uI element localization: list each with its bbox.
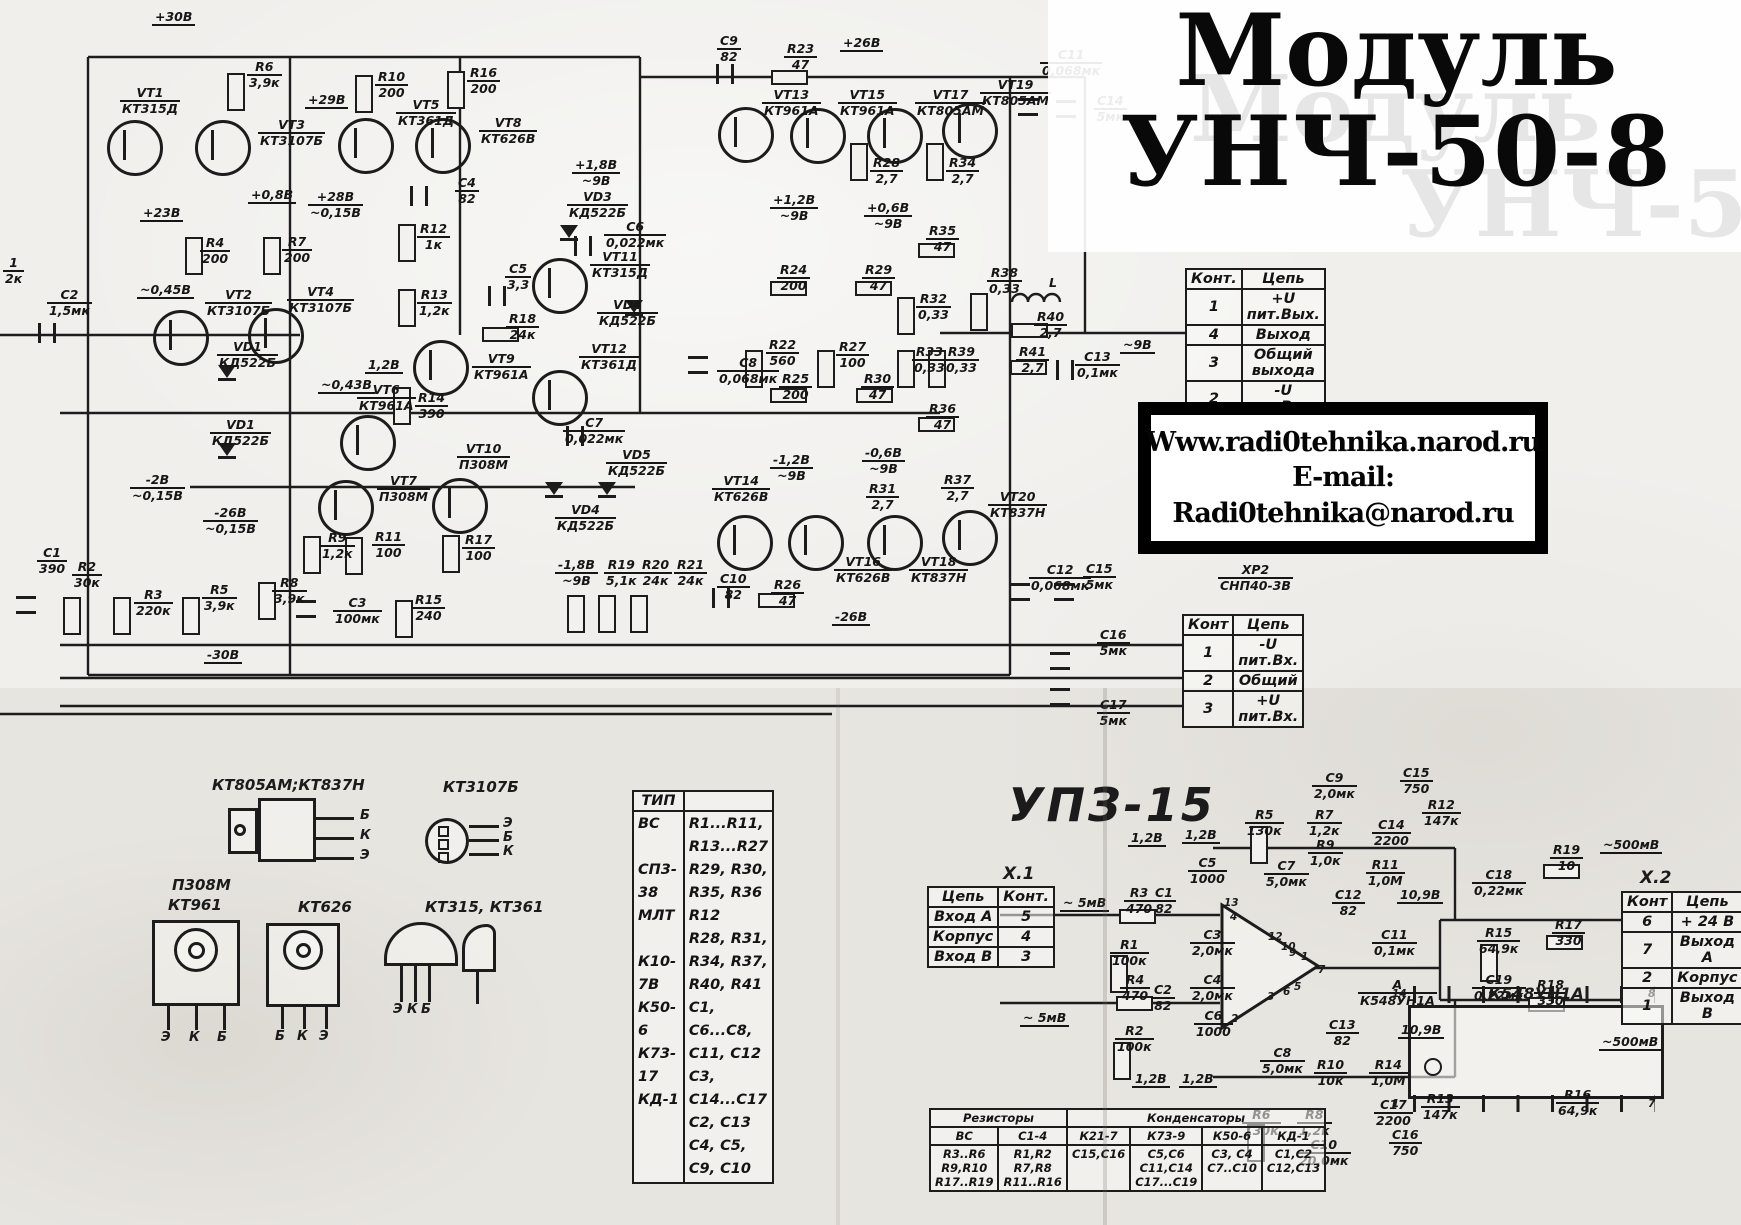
component-label: VT11КТ315Д xyxy=(590,250,650,280)
component-label: R3647 xyxy=(926,402,959,432)
output-connector-table-cell: Общий выхода xyxy=(1242,345,1325,381)
component-label: C1082 xyxy=(717,572,750,602)
kt3107-pin-label: К xyxy=(503,844,514,859)
website-banner-inner: Www.radi0tehnika.narod.ru E-mail: Radi0t… xyxy=(1151,415,1535,541)
component-label: VD3КД522Б xyxy=(567,190,628,220)
xp2-connector-table-cell: -U пит.Вх. xyxy=(1233,635,1303,671)
pinout-caption-kt3107: КТ3107Б xyxy=(443,778,519,796)
x2-connector-table-header: Конт xyxy=(1622,892,1672,912)
component-label: R342,7 xyxy=(946,156,979,186)
capacitor-symbol xyxy=(410,186,428,206)
kt315-pin-label: Э xyxy=(393,1002,403,1017)
component-label: VT9КТ961А xyxy=(472,352,531,382)
component-label: C155мк xyxy=(1083,562,1116,592)
resistor-symbol xyxy=(63,597,81,635)
kt361-pin-lead-line xyxy=(476,972,479,1004)
opamp-pin-number: 7 xyxy=(1318,964,1325,976)
component-label: R14390 xyxy=(415,391,448,421)
component-label: VT19КТ805АМ xyxy=(980,78,1051,108)
x1-connector-table-cell: 3 xyxy=(998,947,1054,967)
transistor-symbol xyxy=(338,118,394,174)
opamp-pin-number: 13 xyxy=(1224,897,1239,909)
component-label: R4200 xyxy=(200,236,230,266)
output-connector-table-cell: 4 xyxy=(1186,325,1242,345)
upz-component-label: R111,0М xyxy=(1366,858,1405,888)
pin-lead-line xyxy=(316,857,354,860)
upz-component-label: R1664,9к xyxy=(1556,1088,1599,1118)
resistor-symbol xyxy=(355,75,373,113)
kt3107-pin-label: Б xyxy=(503,830,513,845)
pinout-caption-kt961: КТ961 xyxy=(168,896,222,914)
component-label: C1390 xyxy=(37,546,67,576)
upz-component-label: R141,0М xyxy=(1369,1058,1408,1088)
component-label: R16200 xyxy=(467,66,500,96)
resistor-symbol xyxy=(182,597,200,635)
opamp-pin-number: 6 xyxy=(1283,986,1290,998)
capacitor-symbol xyxy=(1050,652,1070,670)
xp2-connector-table-cell: +U пит.Вх. xyxy=(1233,691,1303,727)
resistor-symbol xyxy=(113,597,131,635)
x2-connector-table-cell: Выход А xyxy=(1672,932,1741,968)
component-label: VT17КТ805АМ xyxy=(915,88,986,118)
upz-component-label: C180,22мк xyxy=(1472,868,1526,898)
component-label: C175мк xyxy=(1097,698,1130,728)
opamp-pin-number: 4 xyxy=(1230,911,1237,923)
component-label: R3220к xyxy=(134,588,173,618)
component-label: VD5КД522Б xyxy=(606,448,667,478)
component-label: VT20КТ837Н xyxy=(988,490,1047,520)
kt805-package-body xyxy=(258,798,316,862)
resistor-symbol xyxy=(897,297,915,335)
voltage-label: +26В xyxy=(840,36,883,52)
kt3107-pin-square xyxy=(438,852,449,863)
ic-pin-number: 1 xyxy=(1392,1098,1399,1110)
resistor-symbol xyxy=(970,293,988,331)
upz-component-label: C51000 xyxy=(1188,856,1227,886)
component-label: R330,33 xyxy=(912,345,947,375)
transistor-symbol xyxy=(340,415,396,471)
opamp-pin-number: 1 xyxy=(1301,951,1308,963)
kt3107-pin-square xyxy=(438,839,449,850)
upz-component-label: R4470 xyxy=(1120,973,1150,1003)
component-label: VD4КД522Б xyxy=(597,298,658,328)
kt626-pin-label: Б xyxy=(275,1029,285,1044)
upz-component-label: C142200 xyxy=(1372,818,1411,848)
resistor-symbol xyxy=(598,595,616,633)
component-label: R1824к xyxy=(506,312,539,342)
xp2-connector-table-cell: 3 xyxy=(1183,691,1233,727)
component-label: VT1КТ315Д xyxy=(120,86,180,116)
x2-connector-table-cell: 7 xyxy=(1622,932,1672,968)
component-label: VT12КТ361Д xyxy=(579,342,639,372)
component-label: VT18КТ837Н xyxy=(909,555,968,585)
x1-connector-table-cell: Вход В xyxy=(928,947,998,967)
capacitor-symbol xyxy=(1050,688,1070,706)
component-label: R2347 xyxy=(784,42,817,72)
component-label: R83,9к xyxy=(272,576,307,606)
kt805-mounting-hole xyxy=(234,824,246,836)
diode-symbol xyxy=(598,482,616,498)
x1-connector-table-cell: Вход А xyxy=(928,907,998,927)
voltage-label: ~0,45В xyxy=(137,283,194,299)
voltage-label: +0,6В~9В xyxy=(864,201,912,231)
kt315-pin-label: К xyxy=(407,1002,418,1017)
voltage-label: 1,2В xyxy=(365,358,403,374)
capacitor-symbol xyxy=(688,356,708,374)
resistor-capacitor-type-table: РезисторыКонденсаторыВСС1-4К21-7К73-9К50… xyxy=(929,1108,1326,1192)
component-label: R282,7 xyxy=(870,156,903,186)
upz-component-label: C15750 xyxy=(1400,766,1433,796)
capacitor-symbol xyxy=(716,64,734,84)
ic-pin1-dot xyxy=(1424,1058,1442,1076)
scanned-schematic-page: VT1КТ315ДR63,9кR10200R16200VT3КТ3107БVT5… xyxy=(0,0,1741,1225)
pin-lead-line xyxy=(428,966,431,1002)
paper-crease-2 xyxy=(836,688,840,1225)
resistor-symbol xyxy=(771,70,808,85)
component-label: R24200 xyxy=(777,263,810,293)
capacitor-symbol xyxy=(1010,583,1030,601)
transistor-symbol xyxy=(195,120,251,176)
component-label: 12к xyxy=(3,256,24,286)
pin-lead-line xyxy=(167,1006,170,1030)
component-label: R412,7 xyxy=(1016,345,1049,375)
upz-voltage-label: 1,2В xyxy=(1128,831,1166,847)
component-label: C60,022мк xyxy=(604,220,666,250)
upz-component-label: R3470 xyxy=(1124,886,1154,916)
component-label: R380,33 xyxy=(987,266,1022,296)
type-cell: R3..R6 R9,R10 R17..R19 xyxy=(930,1145,998,1191)
upz-component-label: R2100к xyxy=(1115,1024,1154,1054)
component-label: C53,3 xyxy=(505,262,531,292)
upz-component-label: R1910 xyxy=(1550,843,1583,873)
pin-lead-line xyxy=(223,1006,226,1030)
upz-component-label: C1282 xyxy=(1332,888,1365,918)
upz-component-label: R71,2к xyxy=(1307,808,1342,838)
voltage-label: +28В~0,15В xyxy=(308,190,363,220)
component-label: R320,33 xyxy=(916,292,951,322)
component-label: R7200 xyxy=(282,235,312,265)
pinout-caption-kt315-kt361: КТ315, КТ361 xyxy=(425,898,544,916)
upz-component-label: R1564,9к xyxy=(1477,926,1520,956)
component-type-table: ТИПВС СП3-38 МЛТ К10-7В К50-6 К73-17 КД-… xyxy=(632,790,774,1184)
type-cell: R1,R2 R7,R8 R11..R16 xyxy=(998,1145,1066,1191)
component-label: R390,33 xyxy=(944,345,979,375)
p308-pin-label: Б xyxy=(217,1030,227,1045)
component-label: C80,068мк xyxy=(717,356,779,386)
component-label: VT2КТ3107Б xyxy=(205,288,272,318)
upz-voltage-label: 1,2В xyxy=(1179,1072,1217,1088)
component-label: C165мк xyxy=(1097,628,1130,658)
component-label: R11100 xyxy=(372,530,405,560)
component-label: C70,022мк xyxy=(563,416,625,446)
x1-connector-table-cell: 5 xyxy=(998,907,1054,927)
kt805-pin-label: Э xyxy=(360,848,370,863)
pin-lead-line xyxy=(303,1007,306,1029)
banner-url: Www.radi0tehnika.narod.ru xyxy=(1146,425,1540,460)
transistor-symbol xyxy=(413,340,469,396)
diode-symbol xyxy=(545,482,563,498)
x2-connector-table-cell: 2 xyxy=(1622,968,1672,988)
pin-lead-line xyxy=(414,966,417,1002)
upz-component-label: C61000 xyxy=(1194,1009,1233,1039)
pinout-caption-p308m: П308М xyxy=(172,876,231,894)
x2-connector-table-cell: 6 xyxy=(1622,912,1672,932)
type-table-header: ТИП xyxy=(633,791,684,811)
upz-voltage-label: 10,9В xyxy=(1398,1023,1444,1039)
transistor-symbol xyxy=(153,310,209,366)
type-column-header: К21-7 xyxy=(1067,1127,1130,1145)
x1-connector-table-header: Цепь xyxy=(928,887,998,907)
upz-component-label: C85,0мк xyxy=(1260,1046,1305,1076)
type-cell: C15,C16 xyxy=(1067,1145,1130,1191)
component-label: R2947 xyxy=(862,263,895,293)
group-header-resistors: Резисторы xyxy=(930,1109,1067,1127)
resistor-symbol xyxy=(398,289,416,327)
component-label: R10200 xyxy=(375,70,408,100)
xp2-connector-table-cell: 2 xyxy=(1183,671,1233,691)
capacitor-symbol xyxy=(488,286,506,306)
voltage-label: -1,8В~9В xyxy=(555,558,598,588)
paper-crease xyxy=(1103,688,1107,1225)
component-label: C482 xyxy=(455,176,479,206)
pinout-caption-kt626: КТ626 xyxy=(298,898,352,916)
page-title-line2: УНЧ-50-8 xyxy=(1052,104,1741,200)
type-cell: C3, C4 C7..C10 xyxy=(1202,1145,1262,1191)
resistor-symbol xyxy=(398,224,416,262)
x2-connector-table: КонтЦепь6+ 24 В7Выход А2Корпус1Выход В xyxy=(1621,891,1741,1025)
component-label: R2124к xyxy=(674,558,707,588)
x2-connector-table-header: Цепь xyxy=(1672,892,1741,912)
component-label: C3100мк xyxy=(333,596,382,626)
component-label: VT3КТ3107Б xyxy=(258,118,325,148)
component-label: VT14КТ626В xyxy=(712,474,770,504)
transistor-symbol xyxy=(318,480,374,536)
kt626-can-inner xyxy=(296,943,311,958)
voltage-label: +30В xyxy=(152,10,195,26)
component-label: VT15КТ961А xyxy=(838,88,897,118)
upz-component-label: C75,0мк xyxy=(1264,859,1309,889)
type-cell: C5,C6 C11,C14 C17...C19 xyxy=(1130,1145,1202,1191)
kt3107-pin-square xyxy=(438,826,449,837)
ic-pin-number: 7 xyxy=(1648,1098,1655,1110)
voltage-label: +23В xyxy=(140,206,183,222)
upz-component-label: C32,0мк xyxy=(1190,928,1235,958)
upz-component-label: C282 xyxy=(1151,983,1175,1013)
xp2-connector-table-cell: Общий xyxy=(1233,671,1303,691)
component-label: R15240 xyxy=(412,593,445,623)
voltage-label: ~9В xyxy=(1120,338,1155,354)
type-table-types: ВС СП3-38 МЛТ К10-7В К50-6 К73-17 КД-1 xyxy=(633,811,684,1183)
component-label: VT13КТ961А xyxy=(762,88,821,118)
upz-voltage-label: ~500мВ xyxy=(1600,838,1662,854)
upz-voltage-label: 1,2В xyxy=(1132,1072,1170,1088)
upz-component-label: C92,0мк xyxy=(1312,771,1357,801)
upz-voltage-label: ~ 5мВ xyxy=(1020,1011,1069,1027)
component-label: C130,1мк xyxy=(1075,350,1120,380)
component-label: R402,7 xyxy=(1034,310,1067,340)
component-label: R17100 xyxy=(462,533,495,563)
banner-email-address: Radi0tehnika@narod.ru xyxy=(1172,496,1513,531)
p308-pin-label: Э xyxy=(161,1030,171,1045)
component-label: VD4КД522Б xyxy=(555,503,616,533)
component-label: R372,7 xyxy=(941,473,974,503)
xp2-connector-table-header: Цепь xyxy=(1233,615,1303,635)
component-label: R312,7 xyxy=(866,482,899,512)
xp2-connector-table: КонтЦепь1-U пит.Вх.2Общий3+U пит.Вх. xyxy=(1182,614,1304,728)
output-connector-table-cell: +U пит.Вых. xyxy=(1242,289,1325,325)
connector-x1-label: Х.1 xyxy=(1003,864,1034,884)
pinout-caption-kt805-kt837: КТ805АМ;КТ837Н xyxy=(212,776,365,794)
component-label: C982 xyxy=(717,34,741,64)
component-label: R25200 xyxy=(779,372,812,402)
x2-connector-table-cell: + 24 В xyxy=(1672,912,1741,932)
resistor-symbol xyxy=(442,535,460,573)
voltage-label: +1,2В~9В xyxy=(770,193,818,223)
x2-connector-table-cell: Выход В xyxy=(1672,988,1741,1024)
type-column-header: С1-4 xyxy=(998,1127,1066,1145)
upz-component-label: R91,0к xyxy=(1308,838,1343,868)
opamp-pin-number: 2 xyxy=(1231,1013,1238,1025)
upz-component-label: C182 xyxy=(1152,886,1176,916)
type-table-refs: R1...R11, R13...R27 R29, R30, R35, R36 R… xyxy=(684,811,773,1183)
transistor-symbol xyxy=(532,258,588,314)
resistor-symbol xyxy=(395,600,413,638)
voltage-label: -26В~0,15В xyxy=(203,506,258,536)
x1-connector-table: ЦепьКонт.Вход А5Корпус4Вход В3 xyxy=(927,886,1055,968)
pin-lead-line xyxy=(316,817,354,820)
website-banner: Www.radi0tehnika.narod.ru E-mail: Radi0t… xyxy=(1138,402,1548,554)
component-label: R53,9к xyxy=(202,583,237,613)
opamp-pin-number: 3 xyxy=(1267,991,1274,1003)
ic-pin-number: 14 xyxy=(1392,988,1407,1000)
component-label: R2024к xyxy=(639,558,672,588)
kt805-pin-label: К xyxy=(360,828,371,843)
output-connector-table-cell: Выход xyxy=(1242,325,1325,345)
transistor-symbol xyxy=(432,478,488,534)
voltage-label: +0,8В xyxy=(248,188,296,204)
component-label: R3547 xyxy=(926,224,959,254)
output-connector-table-cell: 1 xyxy=(1186,289,1242,325)
resistor-symbol xyxy=(850,143,868,181)
ic-type-label: К548УН1А xyxy=(1488,984,1584,1003)
x1-connector-table-header: Конт. xyxy=(998,887,1054,907)
voltage-label: -0,6В~9В xyxy=(862,446,905,476)
kt626-pin-label: К xyxy=(297,1029,308,1044)
voltage-label: ~0,43В xyxy=(318,378,375,394)
x2-connector-table-cell: Корпус xyxy=(1672,968,1741,988)
pin-lead-line xyxy=(316,837,354,840)
component-label: VT5КТ361Д xyxy=(396,98,456,128)
kt315-pin-label: Б xyxy=(421,1002,431,1017)
component-label: R27100 xyxy=(836,340,869,370)
component-label: R63,9к xyxy=(247,60,282,90)
voltage-label: -1,2В~9В xyxy=(770,453,813,483)
xp2-connector-table-header: Конт xyxy=(1183,615,1233,635)
output-connector-table-header: Конт. xyxy=(1186,269,1242,289)
xp2-connector-table-cell: 1 xyxy=(1183,635,1233,671)
page-title-line1: Модуль xyxy=(1052,0,1741,104)
type-column-header: ВС xyxy=(930,1127,998,1145)
component-label: L xyxy=(1046,276,1060,290)
output-connector-table-header: Цепь xyxy=(1242,269,1325,289)
capacitor-symbol xyxy=(1056,360,1074,380)
component-label: VT7П308М xyxy=(377,474,430,504)
connector-x2-label: Х.2 xyxy=(1640,868,1671,888)
component-label: R91,2к xyxy=(320,531,355,561)
upz-component-label: C110,1мк xyxy=(1372,928,1417,958)
upz-component-label: R12147к xyxy=(1422,798,1461,828)
kt3107-pin-label: Э xyxy=(503,816,513,831)
resistor-symbol xyxy=(926,143,944,181)
type-column-header: К73-9 xyxy=(1130,1127,1202,1145)
component-label: R121к xyxy=(417,222,450,252)
output-connector-table-cell: 3 xyxy=(1186,345,1242,381)
kt626-pin-label: Э xyxy=(319,1029,329,1044)
component-label: VT8КТ626В xyxy=(479,116,537,146)
upz-component-label: C42,0мк xyxy=(1190,973,1235,1003)
resistor-symbol xyxy=(303,536,321,574)
resistor-symbol xyxy=(263,237,281,275)
kt805-pin-label: Б xyxy=(360,808,370,823)
resistor-symbol xyxy=(630,595,648,633)
capacitor-symbol xyxy=(16,596,36,614)
p308-can-inner xyxy=(188,942,205,959)
component-label: VD1КД522Б xyxy=(217,340,278,370)
voltage-label: +1,8В~9В xyxy=(572,158,620,188)
component-label: R2647 xyxy=(771,578,804,608)
component-label: VT10П308М xyxy=(457,442,510,472)
pin-lead-line xyxy=(469,853,499,856)
x1-connector-table-cell: Корпус xyxy=(928,927,998,947)
type-cell: C1,C2 C12,C13 xyxy=(1262,1145,1325,1191)
banner-email-label: E-mail: xyxy=(1292,460,1394,495)
capacitor-symbol xyxy=(38,323,56,343)
pin-lead-line xyxy=(469,839,499,842)
component-label: R131,2к xyxy=(417,288,452,318)
voltage-label: -26В xyxy=(832,610,870,626)
opamp-pin-number: 9 xyxy=(1289,947,1296,959)
transistor-symbol xyxy=(107,120,163,176)
resistor-symbol xyxy=(817,350,835,388)
transistor-symbol xyxy=(717,515,773,571)
upz15-title: УПЗ-15 xyxy=(1008,778,1216,832)
component-label: R195,1к xyxy=(604,558,639,588)
resistor-symbol xyxy=(567,595,585,633)
pin-lead-line xyxy=(195,1006,198,1030)
upz-component-label: R13147к xyxy=(1421,1092,1460,1122)
pin-lead-line xyxy=(469,825,499,828)
x2-connector-table-cell: 1 xyxy=(1622,988,1672,1024)
upz-voltage-label: ~500мВ xyxy=(1599,1035,1661,1051)
component-label: C120,068мк xyxy=(1029,563,1091,593)
output-connector-table: Конт.Цепь1+U пит.Вых.4Выход3Общий выхода… xyxy=(1185,268,1326,418)
diode-symbol xyxy=(560,225,578,241)
upz-component-label: C1382 xyxy=(1326,1018,1359,1048)
upz-component-label: R1010к xyxy=(1314,1058,1347,1088)
component-label: R3047 xyxy=(861,372,894,402)
upz-component-label: R1100к xyxy=(1110,938,1149,968)
p308-pin-label: К xyxy=(189,1030,200,1045)
component-label: C21,5мк xyxy=(47,288,92,318)
type-column-header: К50-6 xyxy=(1202,1127,1262,1145)
x1-connector-table-cell: 4 xyxy=(998,927,1054,947)
opamp-triangle-symbol xyxy=(1222,905,1318,1028)
component-label: ХР2СНП40-3В xyxy=(1218,563,1293,593)
type-column-header: КД-1 xyxy=(1262,1127,1325,1145)
component-label: VT16КТ626В xyxy=(834,555,892,585)
page-title: Модуль УНЧ-50-8 xyxy=(1052,0,1741,200)
pin-lead-line xyxy=(325,1007,328,1029)
